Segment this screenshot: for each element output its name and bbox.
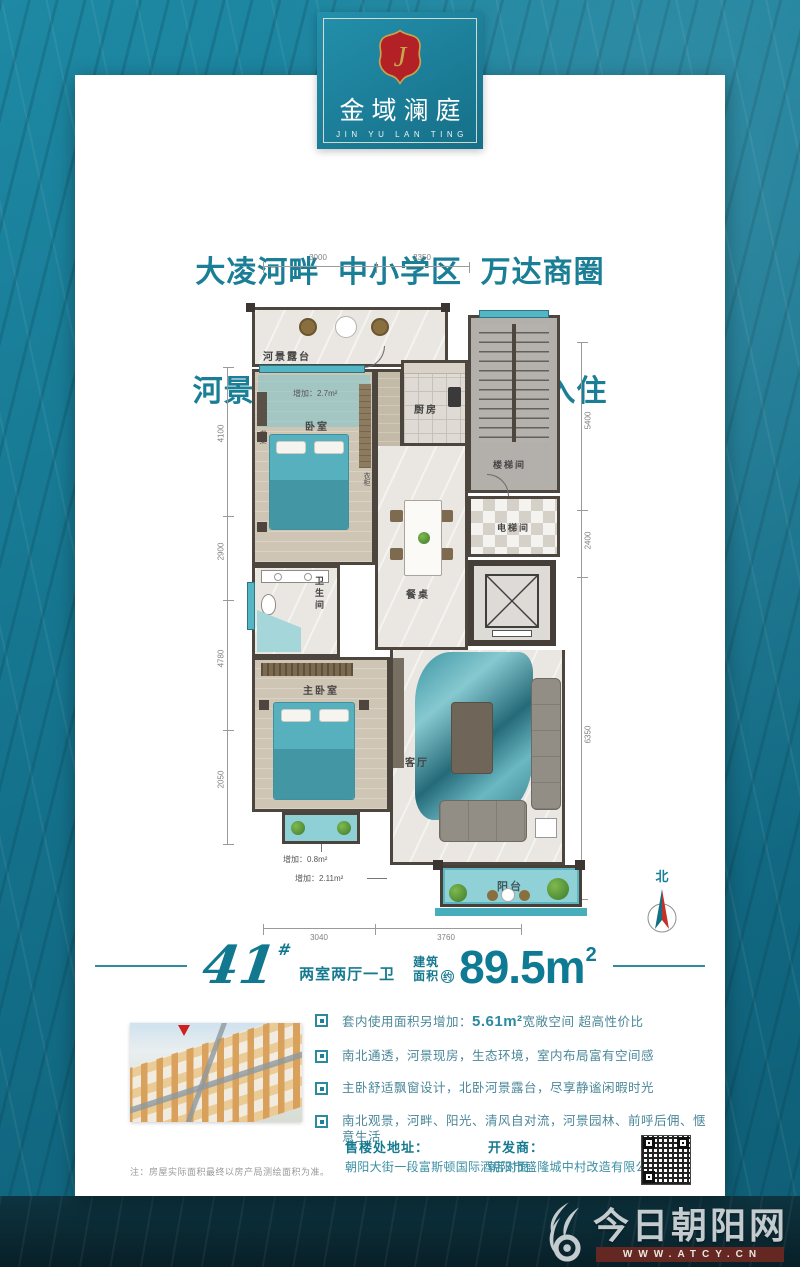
sofa-short <box>439 800 527 842</box>
area-label-line2-wrap: 面积 约 <box>413 970 454 984</box>
square-bullet-icon <box>315 1115 328 1128</box>
area-label-line1: 建筑 <box>413 956 439 970</box>
dim-tick <box>263 262 264 273</box>
dining-chair <box>390 510 403 522</box>
window-bay <box>259 365 365 373</box>
balcony-skirt <box>435 908 587 916</box>
balcony-chair <box>487 890 498 901</box>
room-bedroom-north: 增加：2.7m² 卧室 书桌 衣柜 <box>252 369 375 565</box>
qr-code <box>641 1135 691 1185</box>
feature-text: 南北通透，河景现房，生态环境，室内布局富有空间感 <box>342 1049 654 1065</box>
nightstand <box>257 432 267 442</box>
master-dresser <box>261 663 353 676</box>
room-label-bathroom: 卫生间 <box>313 576 326 612</box>
balcony-table <box>501 888 515 902</box>
dim-label: 2350 <box>397 253 447 262</box>
divider-line <box>95 965 187 967</box>
area-label: 建筑 面积 约 <box>413 956 454 984</box>
terrace-chair <box>371 318 389 336</box>
nightstand <box>257 522 267 532</box>
dim-label: 2900 <box>217 534 226 570</box>
leader-line <box>321 844 322 852</box>
dim-label: 2050 <box>217 762 226 798</box>
window-bathroom <box>247 582 255 630</box>
dim-tick <box>375 924 376 935</box>
elevator-counterweight <box>492 630 532 637</box>
dimension-line-left: 4100 2900 4780 2050 <box>227 367 228 845</box>
north-indicator: 北 <box>642 866 682 944</box>
feature-post: 宽敞空间 超高性价比 <box>523 1015 644 1029</box>
bedroom-desk <box>257 392 267 426</box>
terrace-table <box>335 316 357 338</box>
elevator-x-icon <box>485 574 539 628</box>
area-sup: 2 <box>586 944 597 966</box>
dimension-line-right: 5400 2400 6350 <box>581 342 582 900</box>
aerial-thumbnail <box>130 1023 302 1122</box>
stair-rail <box>512 324 516 442</box>
room-label-master: 主卧室 <box>303 682 339 697</box>
square-bullet-icon <box>315 1014 328 1027</box>
developer-value: 朝阳市盛隆城中村改造有限公司 <box>488 1158 660 1176</box>
feature-text: 主卧舒适飘窗设计，北卧河景露台，尽享静谧闲暇时光 <box>342 1081 654 1097</box>
dim-tick <box>223 844 234 845</box>
unit-number: 41# <box>200 943 292 990</box>
plant <box>291 821 305 835</box>
dim-label: 4100 <box>217 416 226 452</box>
dim-tick <box>223 516 234 517</box>
floorplan: 3000 2350 3040 3760 4100 2900 4780 2050 <box>135 260 705 960</box>
bedroom-wardrobe <box>359 384 371 468</box>
dim-label: 5400 <box>584 403 593 439</box>
dim-tick <box>223 600 234 601</box>
brand-name: 金域澜庭 <box>332 91 467 127</box>
blanket <box>274 749 354 799</box>
location-marker-icon <box>178 1025 190 1036</box>
room-label-kitchen: 厨房 <box>414 401 438 416</box>
feature-item: 主卧舒适飘窗设计，北卧河景露台，尽享静谧闲暇时光 <box>315 1081 715 1097</box>
pillow <box>276 441 306 454</box>
site-watermark: 今日朝阳网 WWW.ATCY.CN <box>535 1200 788 1262</box>
bed-master <box>273 702 355 800</box>
label-bay-add: 增加：0.8m² <box>283 854 327 865</box>
dim-tick <box>263 924 264 935</box>
area-value-wrap: 89.5m2 <box>459 944 597 988</box>
room-master-bedroom: 主卧室 <box>252 657 390 812</box>
qr-finder <box>677 1137 689 1149</box>
stove <box>448 387 461 407</box>
room-elevator-hall: 电梯间 <box>468 496 560 557</box>
unit-hash: # <box>277 940 293 959</box>
area-label-line2: 面积 <box>413 970 439 984</box>
developer-label: 开发商： <box>488 1138 660 1158</box>
feature-pre: 套内使用面积另增加： <box>342 1015 472 1029</box>
dining-table <box>404 500 442 576</box>
table-plant <box>418 532 430 544</box>
room-stairwell: 楼梯间 <box>468 315 560 493</box>
brand-name-en: JIN YU LAN TING <box>332 130 468 139</box>
wall-pier <box>575 860 585 870</box>
plant <box>449 884 467 902</box>
crest-monogram: J <box>394 42 408 73</box>
blanket <box>270 480 348 529</box>
dim-label: 3000 <box>293 253 343 262</box>
pillow <box>319 709 349 722</box>
room-balcony: 阳台 <box>440 865 582 907</box>
label-terrace-add: 增加：2.7m² <box>293 388 337 399</box>
qr-finder <box>643 1137 655 1149</box>
nightstand <box>259 700 269 710</box>
unit-number-text: 41 <box>199 935 280 996</box>
feature-item: 套内使用面积另增加：5.61m²宽敞空间 超高性价比 <box>315 1013 715 1032</box>
site-name: 今日朝阳网 <box>593 1208 788 1244</box>
wall-pier <box>441 303 450 312</box>
sofa-long <box>531 678 561 810</box>
dimension-line-top: 3000 2350 <box>263 266 470 267</box>
dim-tick <box>223 730 234 731</box>
dim-tick <box>469 262 470 273</box>
unit-layout: 两室两厅一卫 <box>299 963 395 984</box>
plant <box>337 821 351 835</box>
site-logo-icon <box>535 1200 589 1264</box>
square-bullet-icon <box>315 1050 328 1063</box>
shower-area <box>257 610 301 652</box>
bed <box>269 434 349 530</box>
room-label-bedroom: 卧室 <box>305 418 329 433</box>
tv-cabinet <box>393 658 404 768</box>
dim-tick <box>577 510 588 511</box>
feature-value: 5.61m² <box>472 1013 523 1030</box>
kitchen-counter <box>404 363 465 374</box>
room-label-elevator-hall: 电梯间 <box>497 521 530 534</box>
room-label-living: 客厅 <box>405 754 429 769</box>
label-dining-table: 餐桌 <box>406 586 430 601</box>
room-label-terrace: 河景露台 <box>263 348 311 363</box>
area-approx-badge: 约 <box>441 970 454 983</box>
dim-tick <box>521 924 522 935</box>
plant <box>547 878 569 900</box>
badge-frame: J 金域澜庭 JIN YU LAN TING <box>323 18 477 143</box>
toilet <box>261 594 276 615</box>
room-terrace: 河景露台 <box>252 307 448 367</box>
elevator-shaft <box>468 560 556 646</box>
wall-pier <box>246 303 255 312</box>
room-bathroom: 卫生间 <box>252 565 340 657</box>
dining-chair <box>390 548 403 560</box>
pillow <box>281 709 311 722</box>
disclaimer-note: 注：房屋实际面积最终以房产局测绘面积为准。 <box>130 1165 330 1178</box>
site-text: 今日朝阳网 WWW.ATCY.CN <box>593 1208 788 1262</box>
dim-label: 6350 <box>584 717 593 753</box>
balcony-chair <box>519 890 530 901</box>
unit-area: 建筑 面积 约 89.5m2 <box>413 944 597 988</box>
dim-tick <box>376 262 377 273</box>
dim-label: 2400 <box>584 523 593 559</box>
unit-summary: 41# 两室两厅一卫 建筑 面积 约 89.5m2 <box>75 943 725 990</box>
brand-badge: J 金域澜庭 JIN YU LAN TING <box>317 12 483 149</box>
feature-item: 南北通透，河景现房，生态环境，室内布局富有空间感 <box>315 1049 715 1065</box>
dim-tick <box>577 342 588 343</box>
compass-icon <box>644 885 680 939</box>
bay-window-master <box>282 812 360 844</box>
sink <box>304 573 312 581</box>
qr-finder <box>643 1171 655 1183</box>
terrace-chair <box>299 318 317 336</box>
divider-line <box>613 965 705 967</box>
north-label: 北 <box>642 866 682 885</box>
wall-pier <box>433 860 443 870</box>
room-kitchen: 厨房 <box>401 360 468 446</box>
label-wardrobe: 衣柜 <box>361 472 371 486</box>
sink <box>274 573 282 581</box>
site-url: WWW.ATCY.CN <box>596 1247 784 1262</box>
coffee-table <box>451 702 493 774</box>
label-balcony-add: 增加：2.11m² <box>295 873 343 884</box>
crest-icon: J <box>378 29 422 85</box>
pillow <box>314 441 344 454</box>
room-dining: 餐桌 <box>375 446 468 650</box>
window-stairwell <box>479 310 549 318</box>
feature-text: 套内使用面积另增加：5.61m²宽敞空间 超高性价比 <box>342 1013 644 1032</box>
dim-tick <box>577 577 588 578</box>
leader-line <box>367 878 387 879</box>
flyer-card: 大凌河畔 中小学区 万达商圈 河景现房 首付 5 万 即可入住 3000 235… <box>75 75 725 1196</box>
nightstand <box>359 700 369 710</box>
side-table <box>535 818 557 838</box>
poster-background: 大凌河畔 中小学区 万达商圈 河景现房 首付 5 万 即可入住 3000 235… <box>0 0 800 1267</box>
dim-tick <box>223 367 234 368</box>
developer-info: 开发商： 朝阳市盛隆城中村改造有限公司 <box>488 1138 660 1176</box>
area-value: 89.5m <box>459 941 584 993</box>
square-bullet-icon <box>315 1082 328 1095</box>
dim-label: 3040 <box>294 933 344 942</box>
dimension-line-bottom: 3040 3760 <box>263 928 522 929</box>
room-living: 客厅 <box>390 650 565 865</box>
room-label-stairwell: 楼梯间 <box>493 458 526 471</box>
dim-label: 4780 <box>217 641 226 677</box>
